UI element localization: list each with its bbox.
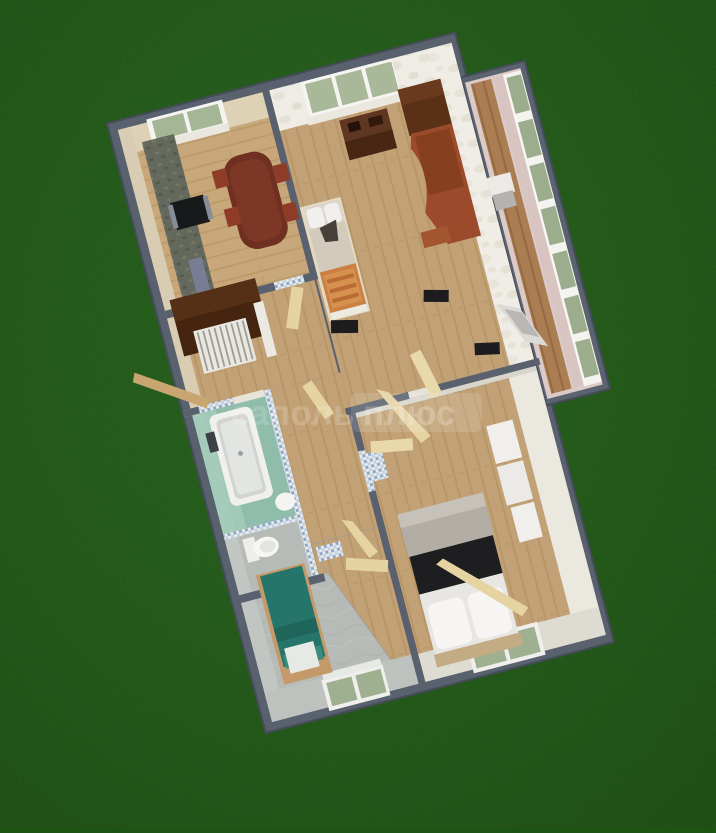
svg-text:еаполь: еаполь: [230, 394, 354, 433]
svg-text:плюс: плюс: [363, 394, 455, 433]
